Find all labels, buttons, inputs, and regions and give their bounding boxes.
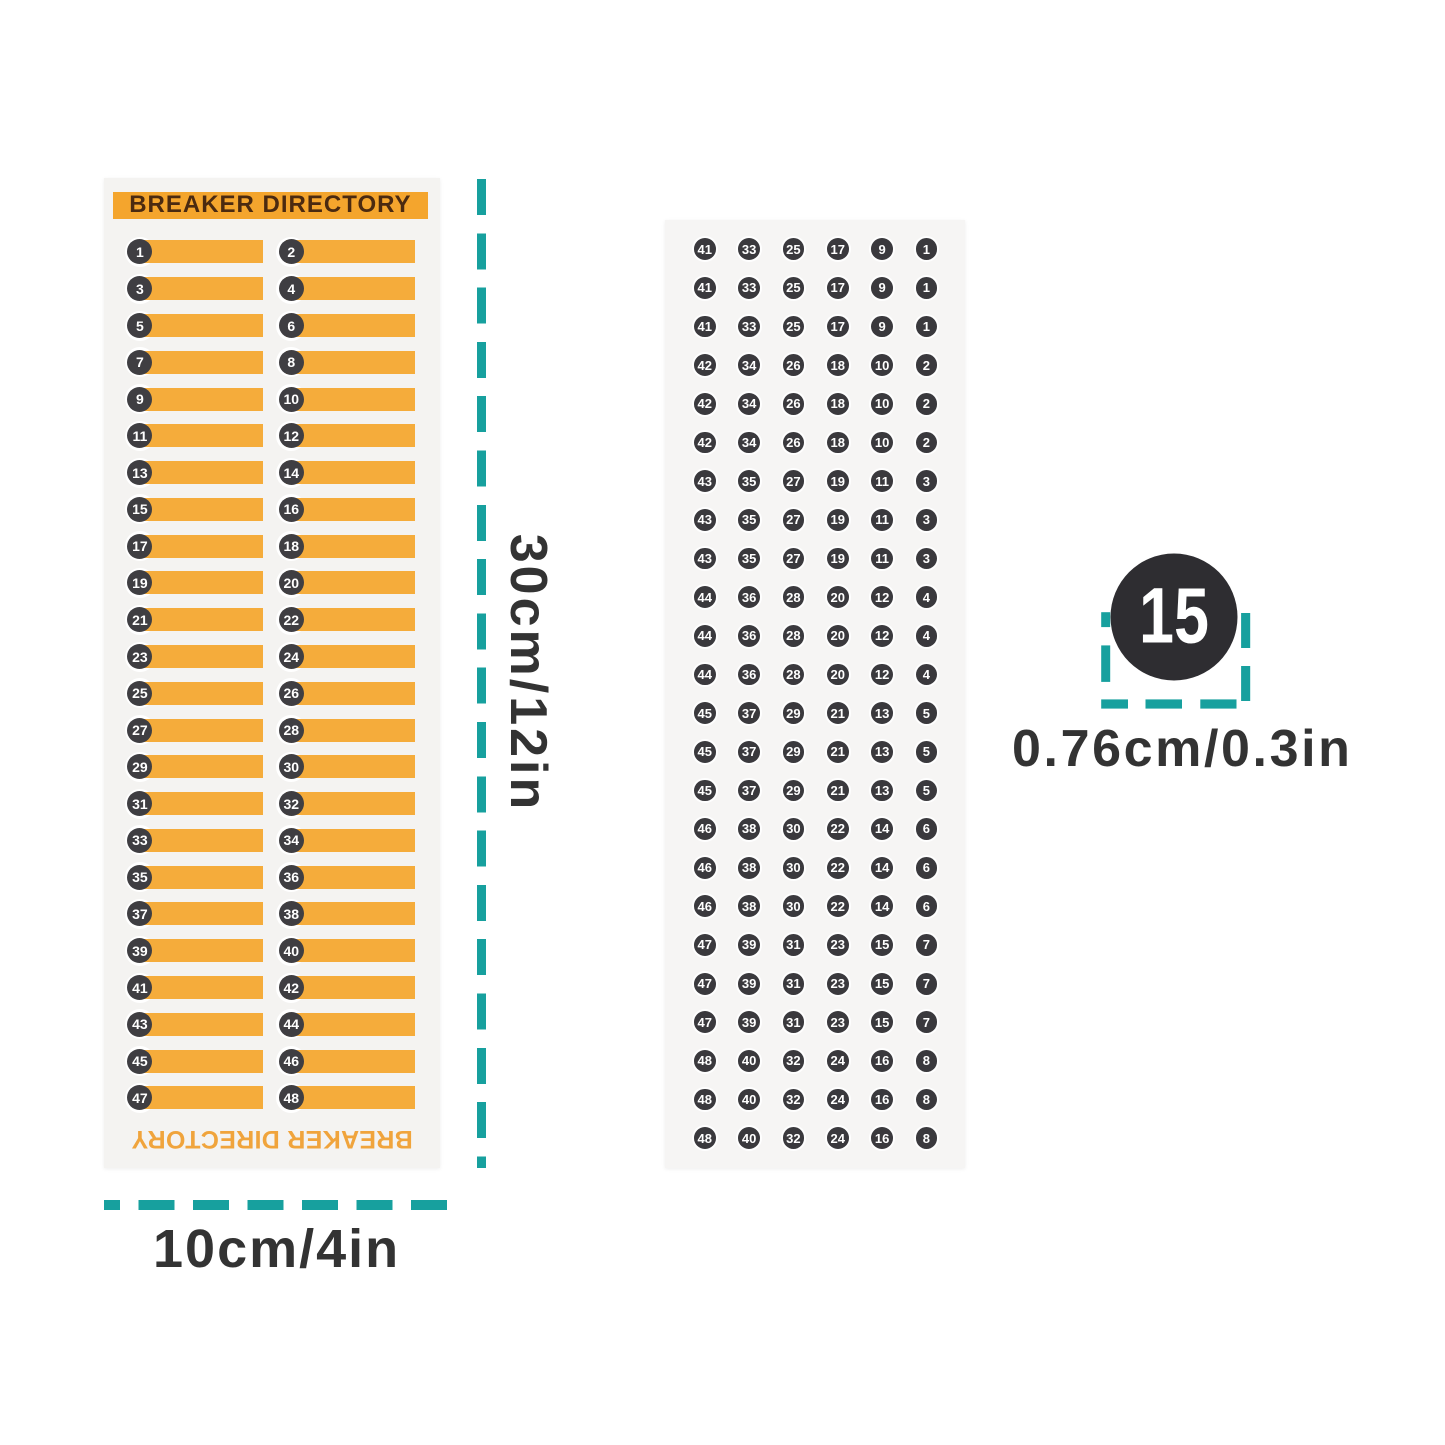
svg-text:15: 15 — [1139, 571, 1209, 660]
